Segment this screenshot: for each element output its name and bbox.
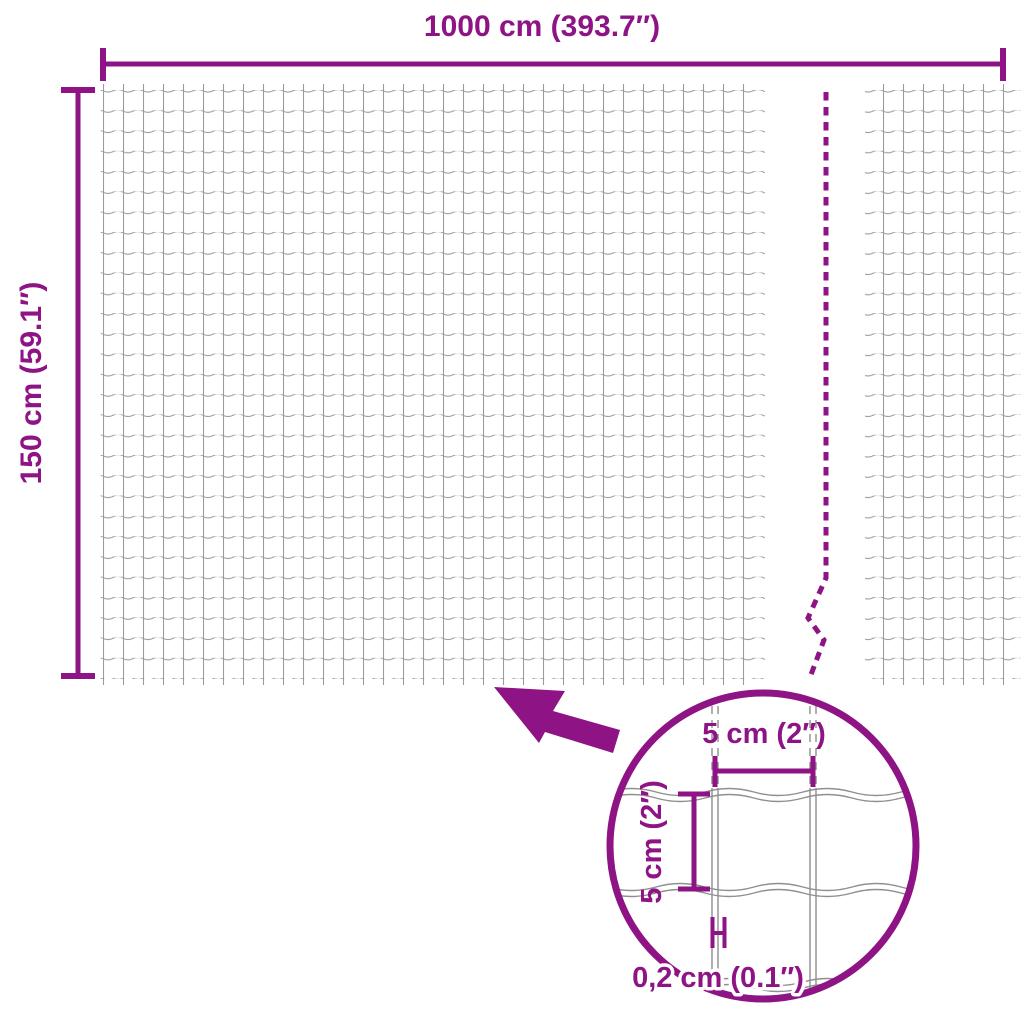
width-label: 1000 cm (393.7″) [424,10,660,43]
mesh-grid-right [865,84,1021,685]
height-label: 150 cm (59.1″) [15,282,48,485]
magnifier-detail: 5 cm (2″) 5 cm (2″) 0,2 cm (0.1″) [607,692,950,1002]
cell-width-dimension: 5 cm (2″) [702,718,826,787]
cell-height-label: 5 cm (2″) [636,780,668,904]
mesh-grid-main [100,84,765,685]
product-dimension-diagram: 1000 cm (393.7″) 150 cm (59.1″) [0,0,1024,1024]
wire-thickness-label: 0,2 cm (0.1″) [632,962,804,994]
diagram-canvas: 1000 cm (393.7″) 150 cm (59.1″) [0,0,1024,1024]
width-dimension: 1000 cm (393.7″) [103,10,1003,81]
arrow-up-left-icon [494,687,620,753]
cell-width-label: 5 cm (2″) [702,718,826,750]
height-dimension: 150 cm (59.1″) [15,90,95,676]
dashed-break-line [808,92,826,680]
